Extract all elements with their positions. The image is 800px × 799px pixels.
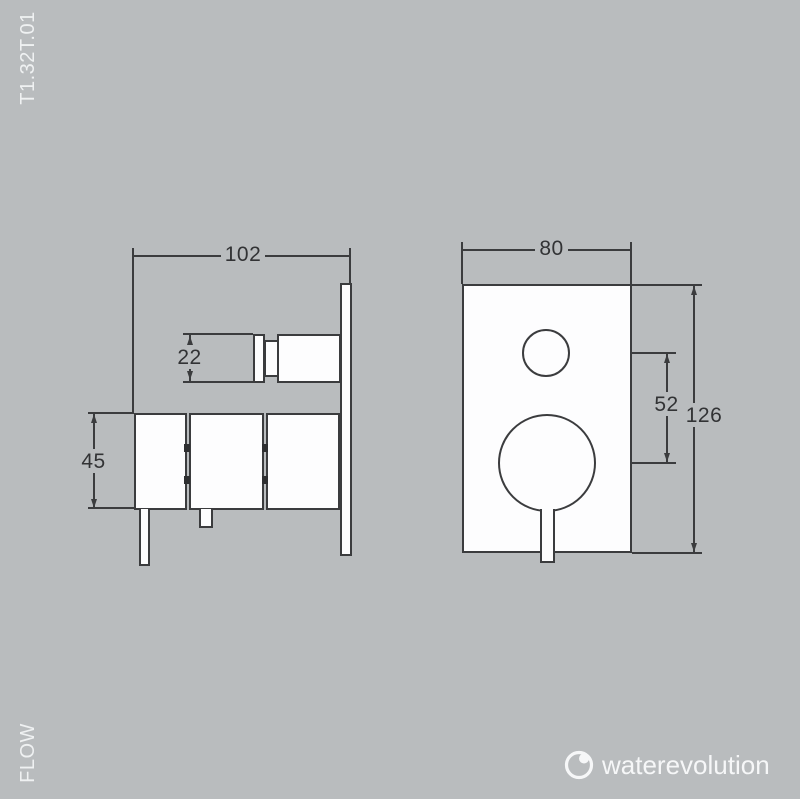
diverter-knob-circle — [522, 329, 570, 377]
dim-126-arrow-up — [691, 286, 697, 295]
dim-22-arrow-up — [187, 336, 193, 345]
brand-logo: waterevolution — [563, 749, 770, 781]
body-segment-1 — [134, 413, 187, 510]
segment-joint-mark — [262, 444, 268, 452]
dim-102-ext-right — [349, 248, 351, 284]
dim-126-label: 126 — [683, 403, 725, 427]
mixer-handle-circle — [498, 414, 596, 512]
brand-name: waterevolution — [602, 749, 770, 781]
knob-body — [277, 334, 341, 383]
segment-joint-mark — [262, 476, 268, 484]
drawing-sheet: 102 22 45 — [0, 0, 800, 799]
dim-45-label: 45 — [79, 449, 108, 473]
dim-22-label: 22 — [175, 345, 204, 369]
dim-80-label: 80 — [535, 236, 568, 260]
lever-handle-front — [540, 509, 555, 563]
segment-joint-mark — [184, 444, 190, 452]
dim-22-ext-bottom — [183, 381, 253, 383]
dim-52-arrow-down — [664, 453, 670, 462]
dim-45-arrow-up — [91, 414, 97, 423]
dim-45-arrow-down — [91, 499, 97, 508]
lever-handle-side — [139, 509, 150, 566]
knob-cap — [253, 334, 265, 383]
dim-52-arrow-up — [664, 354, 670, 363]
dim-126-ext-bottom — [632, 552, 702, 554]
dim-52-ext-bottom — [632, 462, 676, 464]
product-code: T1.32T.01 — [16, 0, 40, 118]
dim-22-ext-top — [183, 333, 253, 335]
dim-102-label: 102 — [221, 242, 265, 266]
water-drop-circle-icon — [563, 749, 595, 781]
wall-plate-side — [340, 283, 352, 556]
dim-52-label: 52 — [651, 392, 682, 416]
body-segment-3 — [266, 413, 340, 510]
body-segment-2 — [189, 413, 264, 510]
dim-102-ext-left — [132, 248, 134, 413]
dim-126-arrow-down — [691, 543, 697, 552]
dim-22-arrow-down — [187, 371, 193, 380]
flow-label: FLOW — [16, 713, 40, 793]
diverter-stub-side — [199, 509, 213, 528]
segment-joint-mark — [184, 476, 190, 484]
